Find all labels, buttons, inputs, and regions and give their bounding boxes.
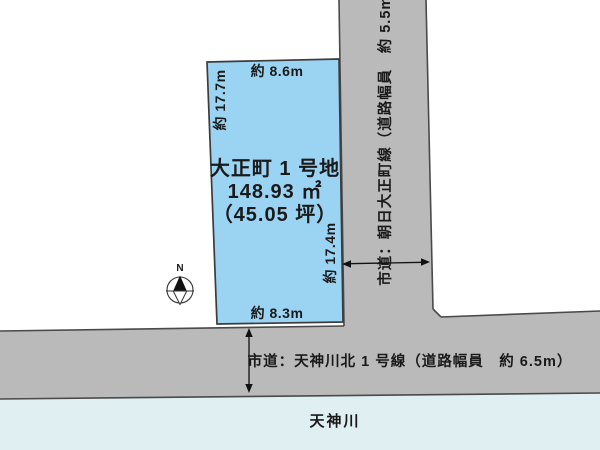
plot-area-tsubo-label: （45.05 坪） [213,203,338,226]
plot-dim-right-label: 約 17.4m [322,222,338,283]
plot-dim-bottom-label: 約 8.3m [251,305,304,321]
site-plan-canvas: 約 8.6m 約 17.7m 約 17.4m 約 8.3m 大正町 1 号地 1… [0,0,600,450]
plot-name-label: 大正町 1 号地 [210,157,340,180]
compass-north-label: N [176,263,183,274]
road-horizontal-label: 市道：天神川北 1 号線（道路幅員 約 6.5m） [248,352,573,370]
site-plan-diagram: 約 8.6m 約 17.7m 約 17.4m 約 8.3m 大正町 1 号地 1… [0,0,600,450]
river-surface [0,392,600,450]
compass: N [166,263,194,305]
plot-area-sqm-label: 148.93 ㎡ [228,179,323,203]
road-vertical-label: 市道：朝日大正町線（道路幅員 約 5.5m） [376,0,394,286]
plot-dim-top-label: 約 8.6m [251,63,304,79]
river-label: 天神川 [309,412,360,430]
plot-dim-left-label: 約 17.7m [212,69,228,130]
